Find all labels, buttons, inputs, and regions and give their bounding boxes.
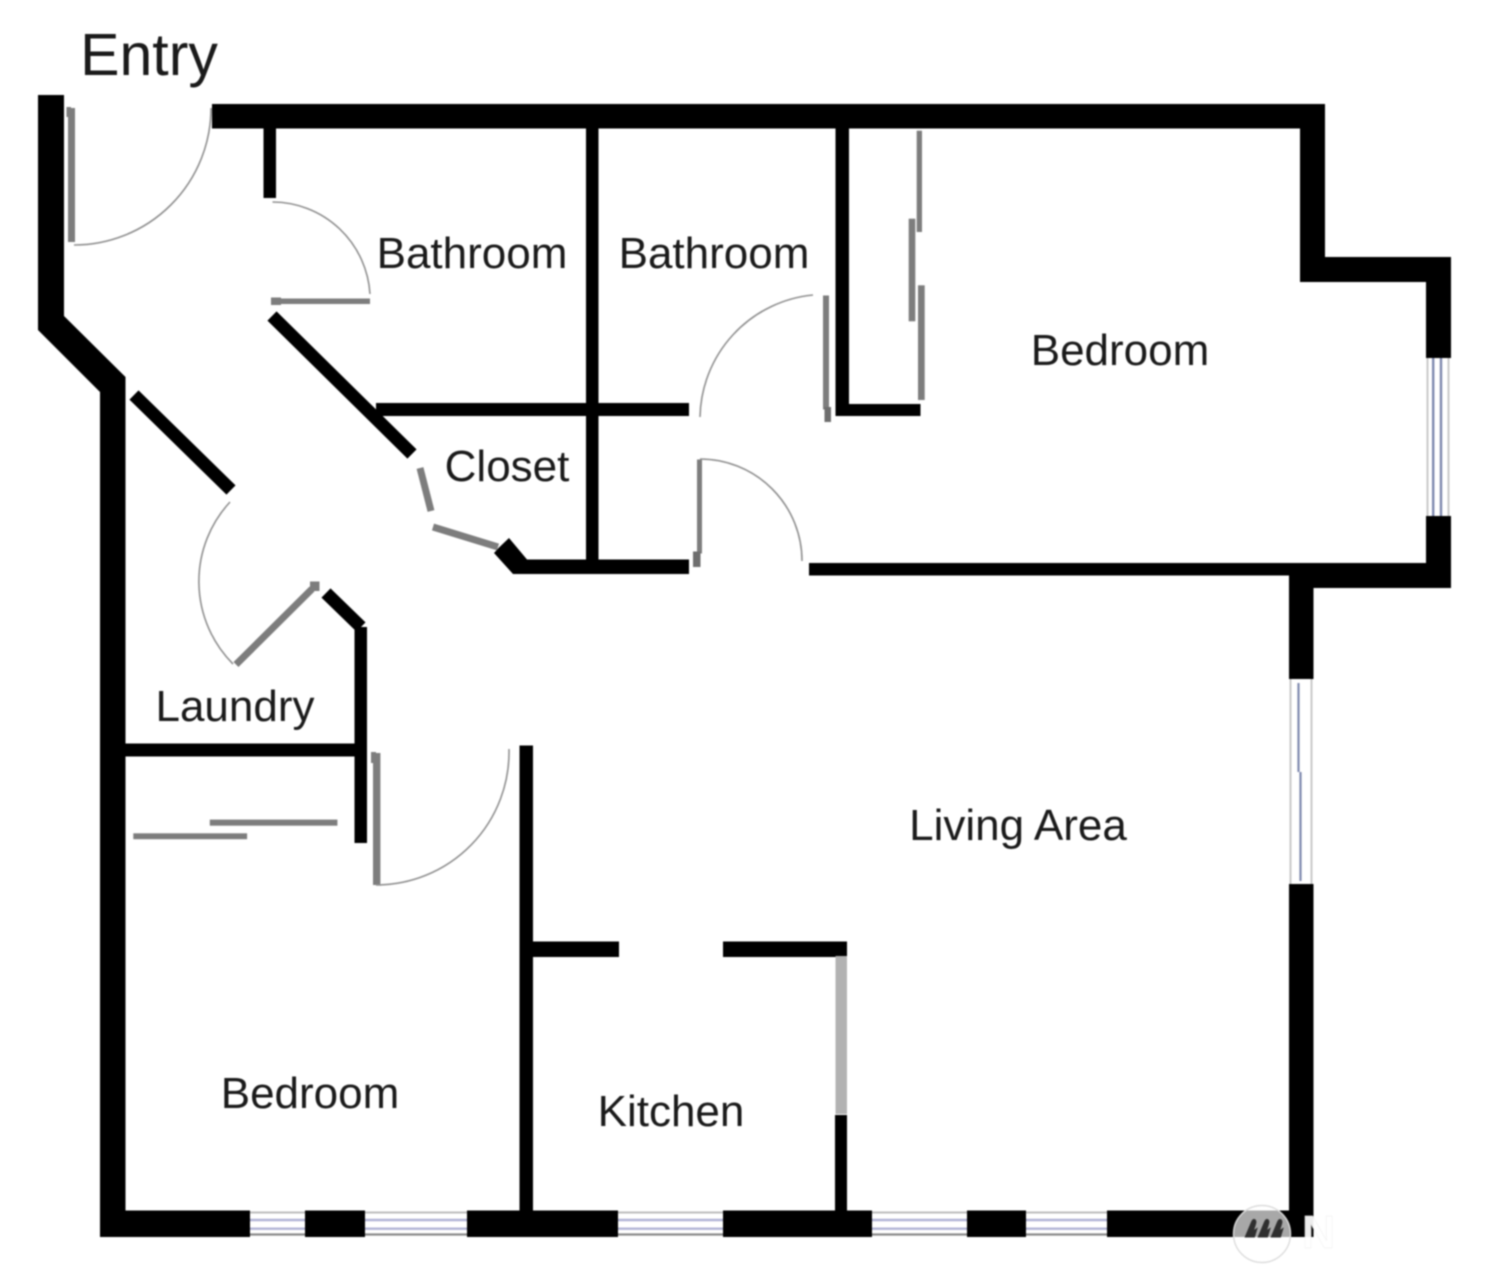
svg-text:Bathroom: Bathroom [619, 229, 810, 278]
svg-text:Closet: Closet [445, 442, 570, 491]
svg-text:Bedroom: Bedroom [221, 1069, 400, 1118]
svg-text:N: N [1302, 1206, 1335, 1258]
svg-text:Entry: Entry [80, 22, 218, 88]
svg-text:Bedroom: Bedroom [1031, 326, 1210, 375]
svg-text:Living Area: Living Area [909, 801, 1127, 850]
svg-text:Laundry: Laundry [155, 682, 314, 731]
svg-text:Kitchen: Kitchen [598, 1087, 745, 1136]
svg-text:Bathroom: Bathroom [377, 229, 568, 278]
